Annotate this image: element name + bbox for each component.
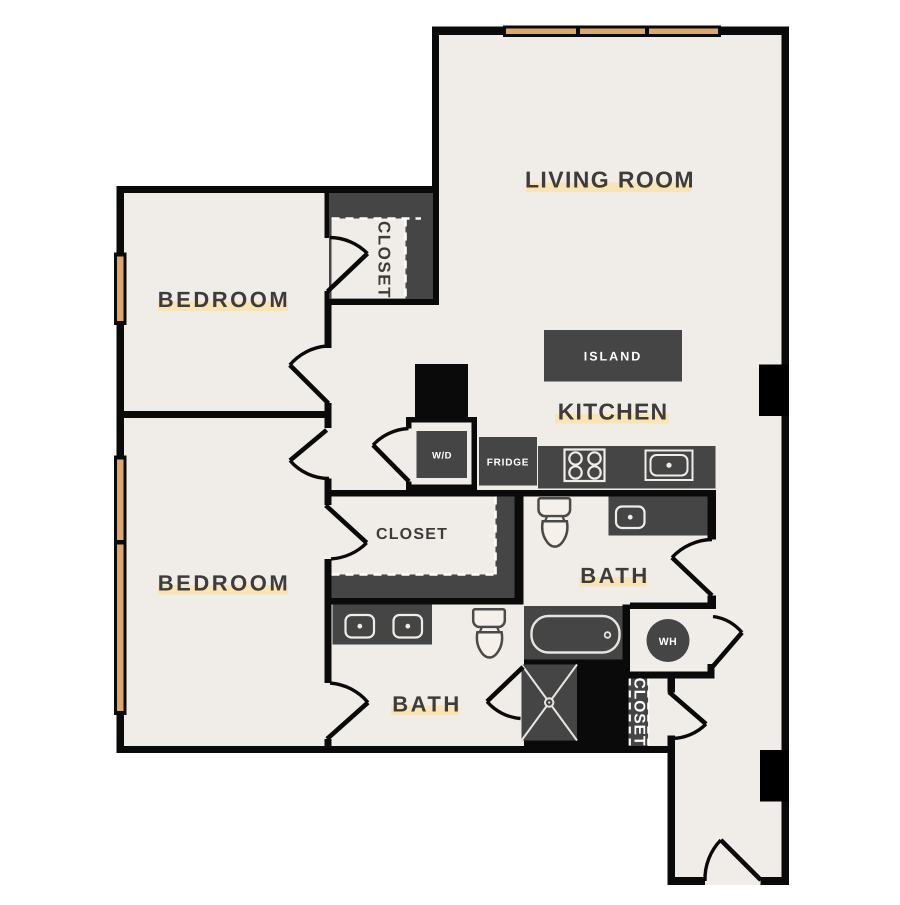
svg-text:LIVING ROOM: LIVING ROOM <box>525 167 695 193</box>
svg-text:CLOSET: CLOSET <box>375 221 394 299</box>
svg-text:CLOSET: CLOSET <box>376 526 448 543</box>
svg-text:BEDROOM: BEDROOM <box>158 571 290 596</box>
svg-text:KITCHEN: KITCHEN <box>558 399 669 425</box>
svg-text:W/D: W/D <box>432 451 452 462</box>
svg-text:WH: WH <box>659 636 678 648</box>
svg-text:CLOSET: CLOSET <box>630 678 647 747</box>
svg-text:BATH: BATH <box>580 563 649 588</box>
svg-text:ISLAND: ISLAND <box>584 350 643 364</box>
svg-text:BEDROOM: BEDROOM <box>158 287 290 312</box>
svg-text:FRIDGE: FRIDGE <box>487 458 530 469</box>
svg-text:BATH: BATH <box>392 692 461 717</box>
